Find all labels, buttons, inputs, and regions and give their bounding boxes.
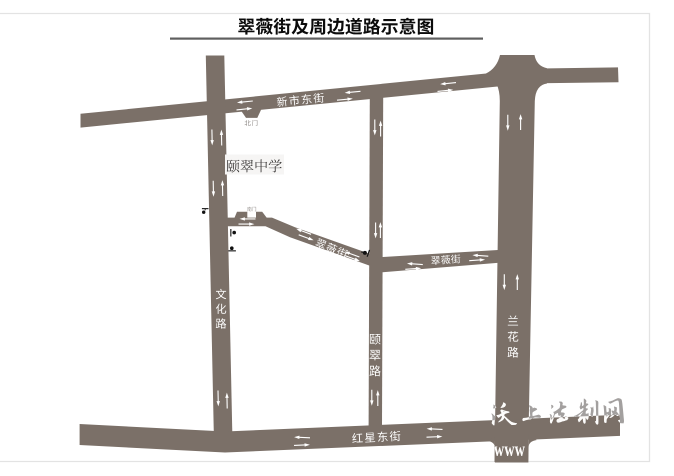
svg-text:www: www: [494, 437, 525, 460]
